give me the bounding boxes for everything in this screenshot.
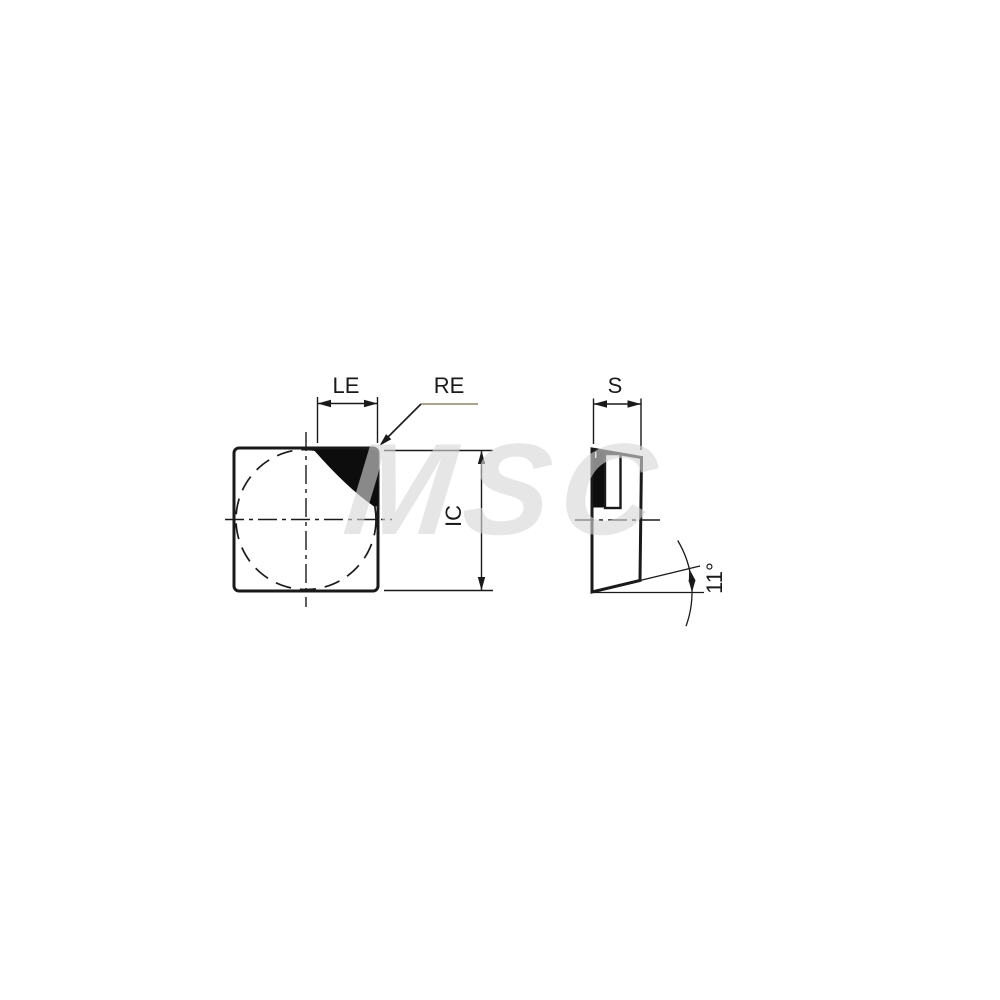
front-view: LE RE IC	[225, 373, 493, 607]
ic-arrow-up-icon	[478, 451, 485, 465]
s-arrow-left-icon	[594, 400, 608, 407]
ic-arrow-down-icon	[478, 577, 485, 591]
tip-pocket-outline	[605, 454, 621, 508]
clearance-angle-label: 11°	[702, 562, 727, 594]
le-arrow-left-icon	[318, 400, 332, 407]
s-dimension: S	[594, 373, 642, 450]
le-label: LE	[333, 373, 360, 398]
s-arrow-right-icon	[628, 400, 642, 407]
ic-label: IC	[441, 505, 466, 527]
le-arrow-right-icon	[364, 400, 378, 407]
drawing-canvas: LE RE IC	[0, 0, 1000, 1000]
s-label: S	[608, 373, 623, 398]
le-dimension: LE	[318, 373, 378, 443]
ic-dimension: IC	[384, 451, 493, 591]
insert-technical-drawing: LE RE IC	[0, 0, 1000, 1000]
angle-arrow-down-icon	[689, 580, 696, 593]
re-label: RE	[434, 373, 465, 398]
re-leader: RE	[380, 373, 479, 446]
side-view: S 11°	[575, 373, 727, 626]
